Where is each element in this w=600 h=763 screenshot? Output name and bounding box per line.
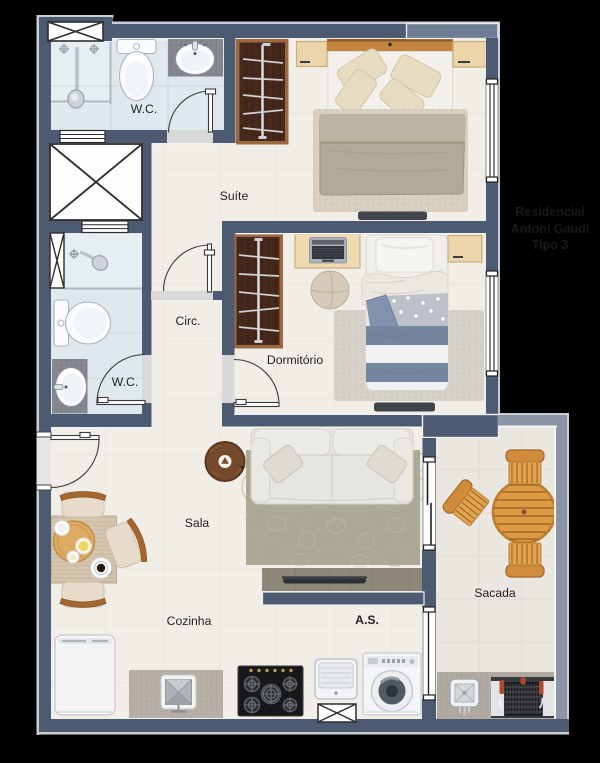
svg-text:Residencial: Residencial: [515, 205, 584, 219]
svg-text:Dormitório: Dormitório: [267, 353, 323, 367]
svg-text:Antoni Gaudí: Antoni Gaudí: [511, 222, 590, 236]
svg-text:Tipo 3: Tipo 3: [532, 238, 569, 252]
svg-text:Sacada: Sacada: [474, 586, 516, 600]
svg-text:Circ.: Circ.: [175, 314, 200, 328]
svg-text:Sala: Sala: [185, 516, 210, 530]
svg-text:W.C.: W.C.: [131, 102, 157, 116]
svg-text:Cozinha: Cozinha: [167, 614, 212, 628]
svg-text:W.C.: W.C.: [112, 375, 138, 389]
svg-text:Suíte: Suíte: [220, 189, 249, 203]
svg-text:A.S.: A.S.: [355, 613, 379, 627]
